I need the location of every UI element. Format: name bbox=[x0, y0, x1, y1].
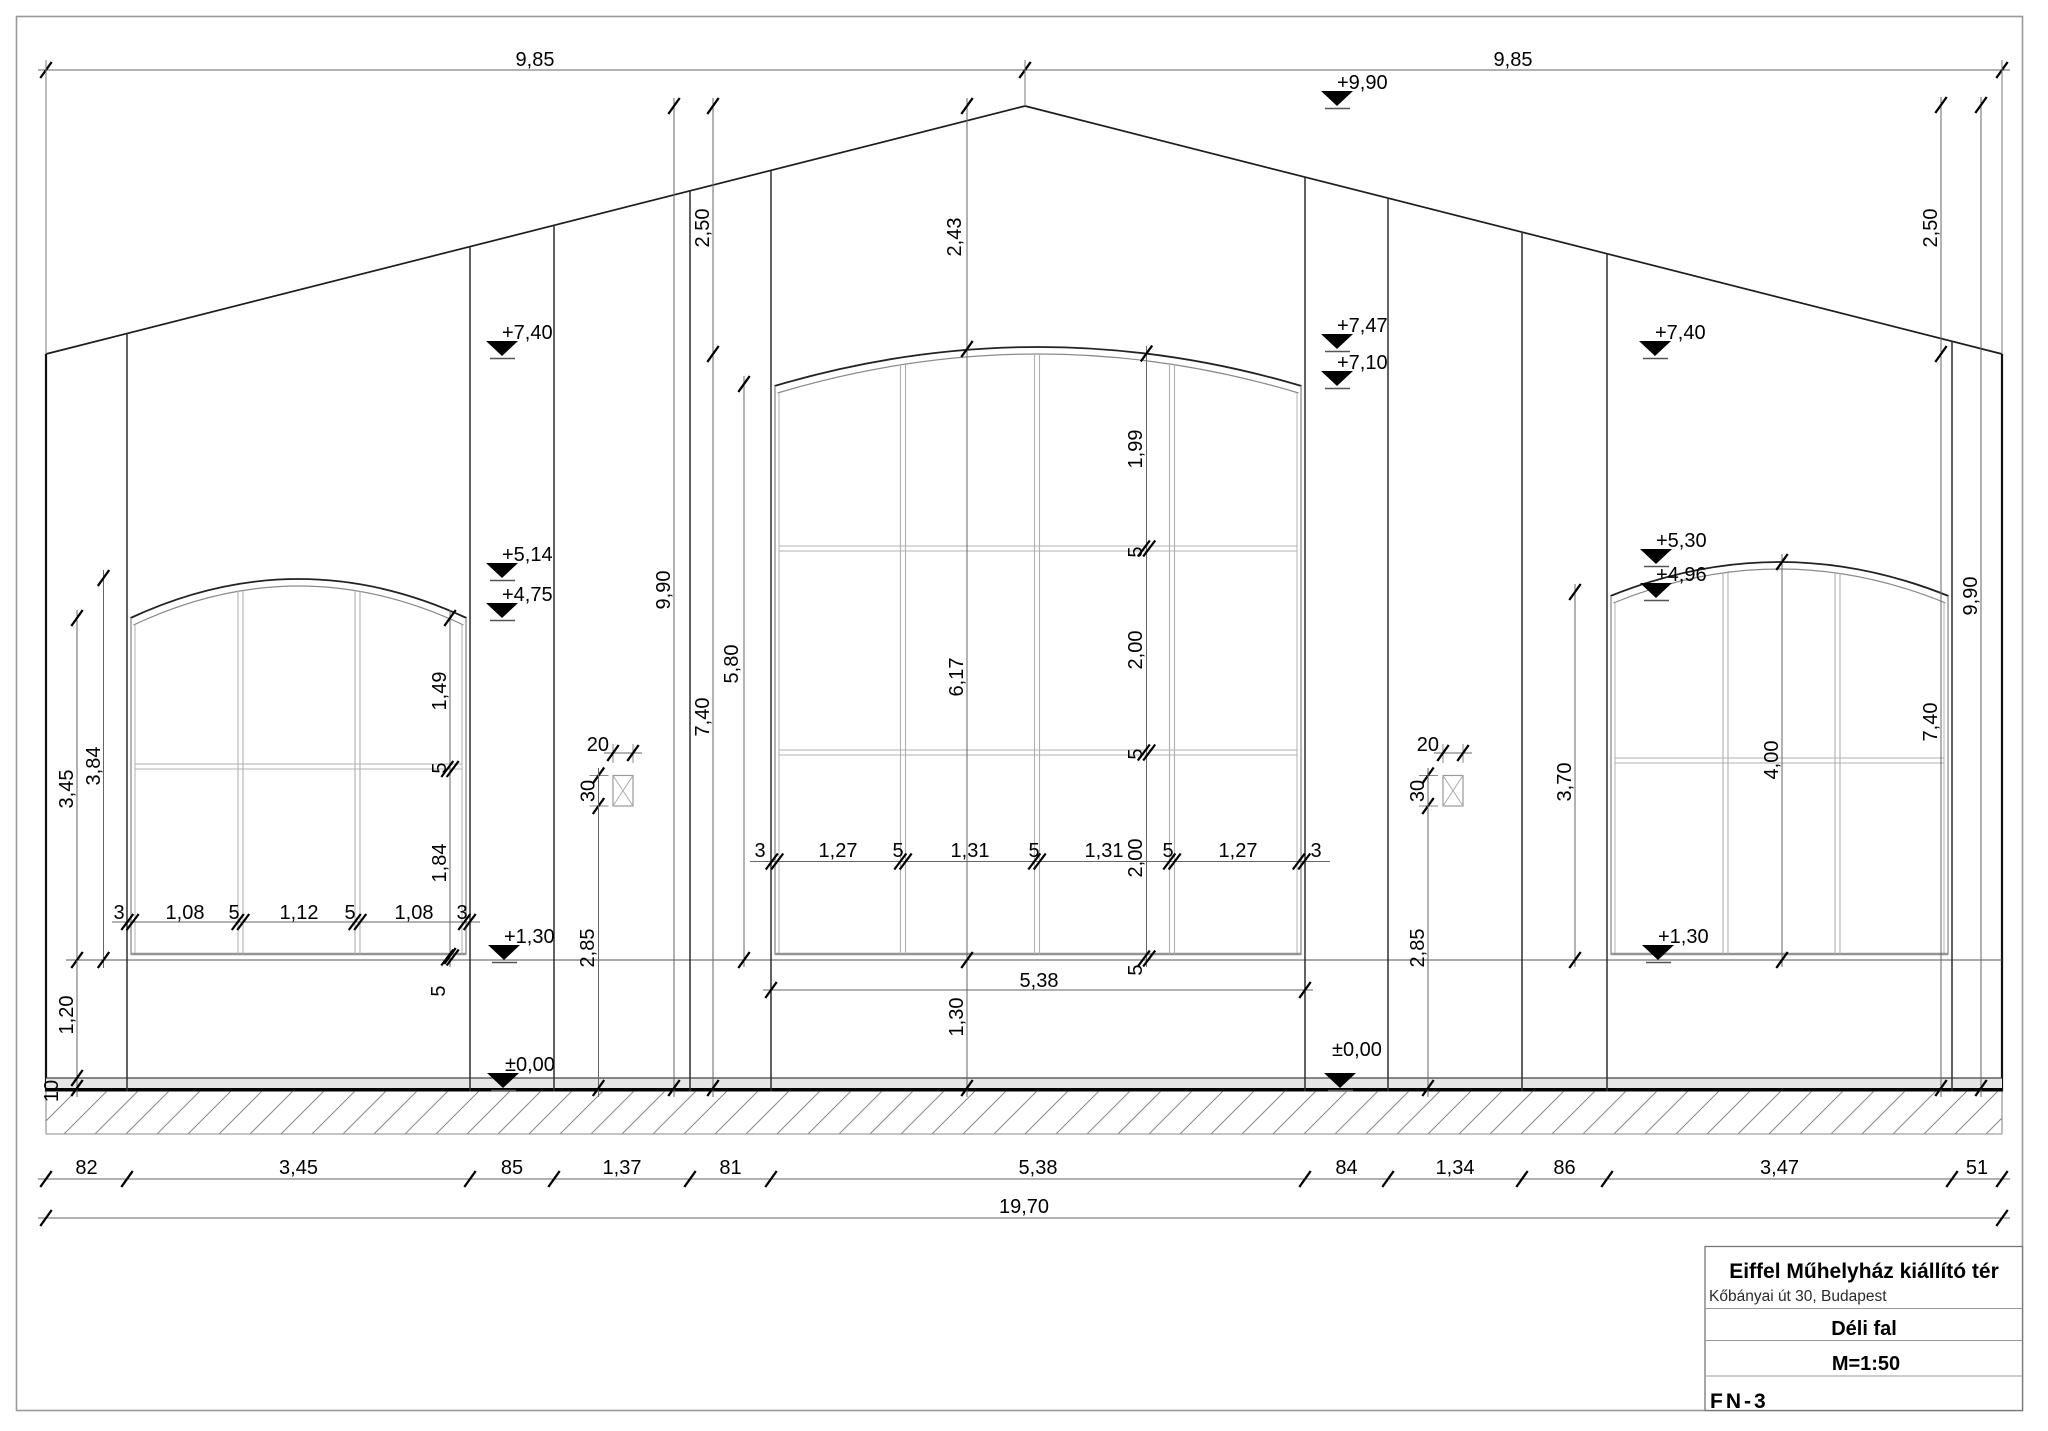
svg-text:5: 5 bbox=[1125, 748, 1147, 759]
svg-text:20: 20 bbox=[587, 734, 609, 756]
svg-text:3,45: 3,45 bbox=[279, 1157, 318, 1179]
svg-text:9,90: 9,90 bbox=[1960, 577, 1982, 616]
svg-text:20: 20 bbox=[1417, 734, 1439, 756]
svg-text:7,40: 7,40 bbox=[1920, 703, 1942, 742]
svg-text:5: 5 bbox=[1125, 964, 1147, 975]
svg-text:1,20: 1,20 bbox=[56, 996, 78, 1035]
svg-text:1,08: 1,08 bbox=[166, 902, 205, 924]
svg-text:9,85: 9,85 bbox=[516, 49, 555, 71]
svg-text:30: 30 bbox=[1407, 780, 1429, 802]
svg-text:85: 85 bbox=[501, 1157, 523, 1179]
svg-text:2,50: 2,50 bbox=[692, 209, 714, 248]
svg-text:19,70: 19,70 bbox=[999, 1196, 1049, 1218]
svg-text:1,37: 1,37 bbox=[603, 1157, 642, 1179]
svg-text:3,70: 3,70 bbox=[1554, 763, 1576, 802]
svg-text:5: 5 bbox=[1125, 546, 1147, 557]
svg-text:Déli fal: Déli fal bbox=[1831, 1318, 1897, 1340]
svg-text:Eiffel Műhelyház kiállító tér: Eiffel Műhelyház kiállító tér bbox=[1729, 1260, 1999, 1283]
svg-text:+1,30: +1,30 bbox=[1658, 926, 1709, 948]
svg-text:3,84: 3,84 bbox=[83, 747, 105, 786]
svg-text:3: 3 bbox=[456, 902, 467, 924]
svg-text:3,47: 3,47 bbox=[1760, 1157, 1799, 1179]
svg-text:+5,14: +5,14 bbox=[502, 544, 553, 566]
svg-text:1,84: 1,84 bbox=[429, 844, 451, 883]
svg-text:3: 3 bbox=[754, 840, 765, 862]
svg-text:1,31: 1,31 bbox=[1085, 840, 1124, 862]
svg-text:+7,40: +7,40 bbox=[1655, 322, 1706, 344]
svg-text:1,27: 1,27 bbox=[819, 840, 858, 862]
svg-text:1,08: 1,08 bbox=[395, 902, 434, 924]
svg-text:1,31: 1,31 bbox=[951, 840, 990, 862]
svg-text:5: 5 bbox=[892, 840, 903, 862]
svg-text:4,00: 4,00 bbox=[1761, 741, 1783, 780]
svg-text:+5,30: +5,30 bbox=[1656, 530, 1707, 552]
svg-text:+7,40: +7,40 bbox=[502, 322, 553, 344]
svg-text:2,00: 2,00 bbox=[1125, 631, 1147, 670]
svg-text:1,30: 1,30 bbox=[946, 998, 968, 1037]
svg-text:3: 3 bbox=[1310, 840, 1321, 862]
svg-text:5: 5 bbox=[344, 902, 355, 924]
svg-text:9,90: 9,90 bbox=[653, 571, 675, 610]
svg-text:1,49: 1,49 bbox=[429, 672, 451, 711]
svg-text:5: 5 bbox=[228, 902, 239, 924]
svg-text:5: 5 bbox=[1028, 840, 1039, 862]
svg-text:7,40: 7,40 bbox=[692, 698, 714, 737]
svg-text:2,00: 2,00 bbox=[1125, 839, 1147, 878]
svg-text:1,34: 1,34 bbox=[1436, 1157, 1475, 1179]
svg-text:+1,30: +1,30 bbox=[504, 926, 555, 948]
svg-text:6,17: 6,17 bbox=[946, 658, 968, 697]
svg-text:82: 82 bbox=[75, 1157, 97, 1179]
svg-text:M=1:50: M=1:50 bbox=[1832, 1353, 1900, 1375]
svg-text:81: 81 bbox=[719, 1157, 741, 1179]
svg-text:Kőbányai út 30, Budapest: Kőbányai út 30, Budapest bbox=[1709, 1288, 1887, 1305]
svg-text:2,50: 2,50 bbox=[1920, 209, 1942, 248]
svg-text:+9,90: +9,90 bbox=[1337, 72, 1388, 94]
svg-text:1,27: 1,27 bbox=[1219, 840, 1258, 862]
svg-text:+4,96: +4,96 bbox=[1656, 564, 1707, 586]
svg-text:3: 3 bbox=[113, 902, 124, 924]
svg-text:±0,00: ±0,00 bbox=[505, 1054, 555, 1076]
svg-text:+7,10: +7,10 bbox=[1337, 352, 1388, 374]
svg-text:86: 86 bbox=[1553, 1157, 1575, 1179]
svg-text:5: 5 bbox=[1162, 840, 1173, 862]
svg-text:9,85: 9,85 bbox=[1494, 49, 1533, 71]
svg-text:2,85: 2,85 bbox=[577, 929, 599, 968]
svg-text:±0,00: ±0,00 bbox=[1332, 1039, 1382, 1061]
svg-text:1,12: 1,12 bbox=[280, 902, 319, 924]
svg-text:5: 5 bbox=[428, 985, 450, 996]
svg-text:2,43: 2,43 bbox=[944, 218, 966, 257]
svg-text:+4,75: +4,75 bbox=[502, 584, 553, 606]
svg-text:5,80: 5,80 bbox=[721, 645, 743, 684]
svg-text:3,45: 3,45 bbox=[56, 770, 78, 809]
svg-text:5,38: 5,38 bbox=[1019, 1157, 1058, 1179]
svg-text:84: 84 bbox=[1335, 1157, 1357, 1179]
svg-text:FN-3: FN-3 bbox=[1710, 1390, 1769, 1413]
svg-text:+7,47: +7,47 bbox=[1337, 315, 1388, 337]
svg-text:10: 10 bbox=[41, 1080, 63, 1102]
svg-text:1,99: 1,99 bbox=[1125, 430, 1147, 469]
svg-text:51: 51 bbox=[1966, 1157, 1988, 1179]
svg-text:30: 30 bbox=[578, 780, 600, 802]
svg-text:5,38: 5,38 bbox=[1020, 970, 1059, 992]
svg-text:5: 5 bbox=[429, 762, 451, 773]
svg-text:2,85: 2,85 bbox=[1407, 929, 1429, 968]
